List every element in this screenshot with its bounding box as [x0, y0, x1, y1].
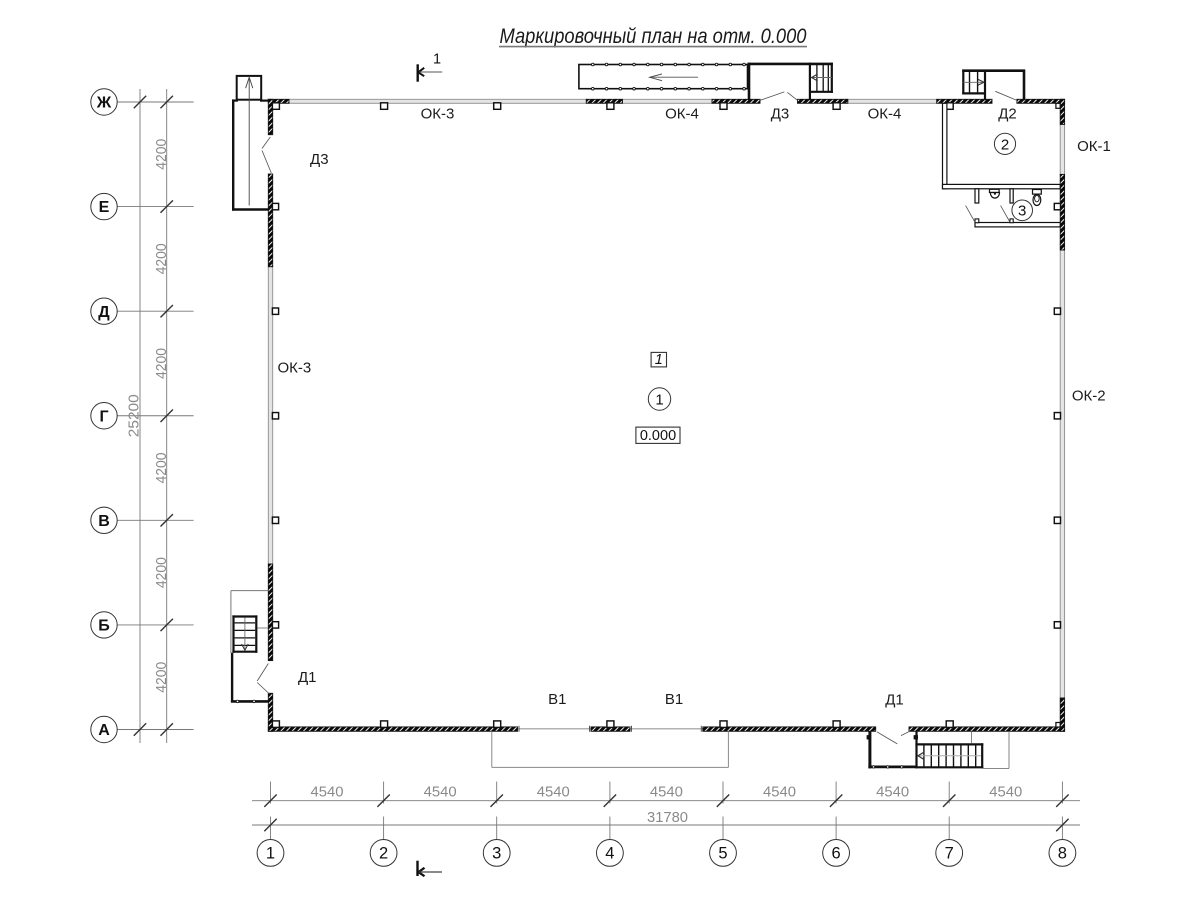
svg-text:4200: 4200	[154, 139, 170, 170]
svg-text:Г: Г	[99, 408, 108, 425]
svg-text:ОК-2: ОК-2	[1072, 388, 1106, 405]
svg-text:2: 2	[379, 845, 388, 863]
svg-text:4200: 4200	[154, 557, 170, 588]
svg-text:ОК-3: ОК-3	[421, 106, 455, 123]
svg-text:2: 2	[1001, 136, 1009, 153]
svg-text:Е: Е	[99, 199, 110, 216]
svg-text:5: 5	[718, 845, 727, 863]
svg-text:Б: Б	[98, 618, 110, 635]
svg-text:4200: 4200	[154, 662, 170, 693]
svg-text:0.000: 0.000	[640, 428, 676, 444]
svg-text:ОК-1: ОК-1	[1077, 138, 1111, 155]
svg-text:4540: 4540	[989, 785, 1022, 801]
svg-text:4540: 4540	[876, 785, 909, 801]
svg-text:4200: 4200	[154, 243, 170, 274]
svg-text:1: 1	[655, 392, 663, 409]
svg-text:ОК-4: ОК-4	[868, 106, 902, 123]
svg-text:4540: 4540	[311, 785, 344, 801]
svg-text:3: 3	[1018, 203, 1026, 220]
svg-text:Маркировочный план на отм. 0.0: Маркировочный план на отм. 0.000	[500, 25, 807, 48]
svg-text:25200: 25200	[127, 394, 143, 437]
svg-text:4540: 4540	[650, 785, 683, 801]
svg-text:1: 1	[655, 352, 663, 368]
svg-text:В1: В1	[548, 691, 566, 708]
svg-text:4540: 4540	[424, 785, 457, 801]
svg-text:1: 1	[433, 51, 441, 67]
svg-text:В1: В1	[665, 691, 683, 708]
svg-text:Д1: Д1	[298, 669, 317, 686]
svg-text:А: А	[98, 722, 110, 739]
svg-text:8: 8	[1058, 845, 1067, 863]
svg-text:4540: 4540	[537, 785, 570, 801]
svg-text:1: 1	[266, 845, 275, 863]
svg-text:Д3: Д3	[310, 151, 329, 168]
svg-text:4540: 4540	[763, 785, 796, 801]
svg-text:6: 6	[832, 845, 841, 863]
svg-text:4200: 4200	[154, 348, 170, 379]
svg-text:4: 4	[605, 845, 614, 863]
svg-text:Ж: Ж	[96, 95, 112, 112]
svg-text:3: 3	[492, 845, 501, 863]
svg-text:ОК-4: ОК-4	[665, 106, 699, 123]
svg-text:Д2: Д2	[998, 106, 1017, 123]
svg-text:7: 7	[945, 845, 954, 863]
svg-text:Д1: Д1	[885, 691, 904, 708]
svg-text:Д3: Д3	[771, 106, 790, 123]
svg-text:В: В	[98, 513, 110, 530]
svg-text:Д: Д	[98, 304, 110, 321]
svg-text:31780: 31780	[647, 810, 688, 826]
svg-text:ОК-3: ОК-3	[278, 359, 312, 376]
svg-text:4200: 4200	[154, 453, 170, 484]
